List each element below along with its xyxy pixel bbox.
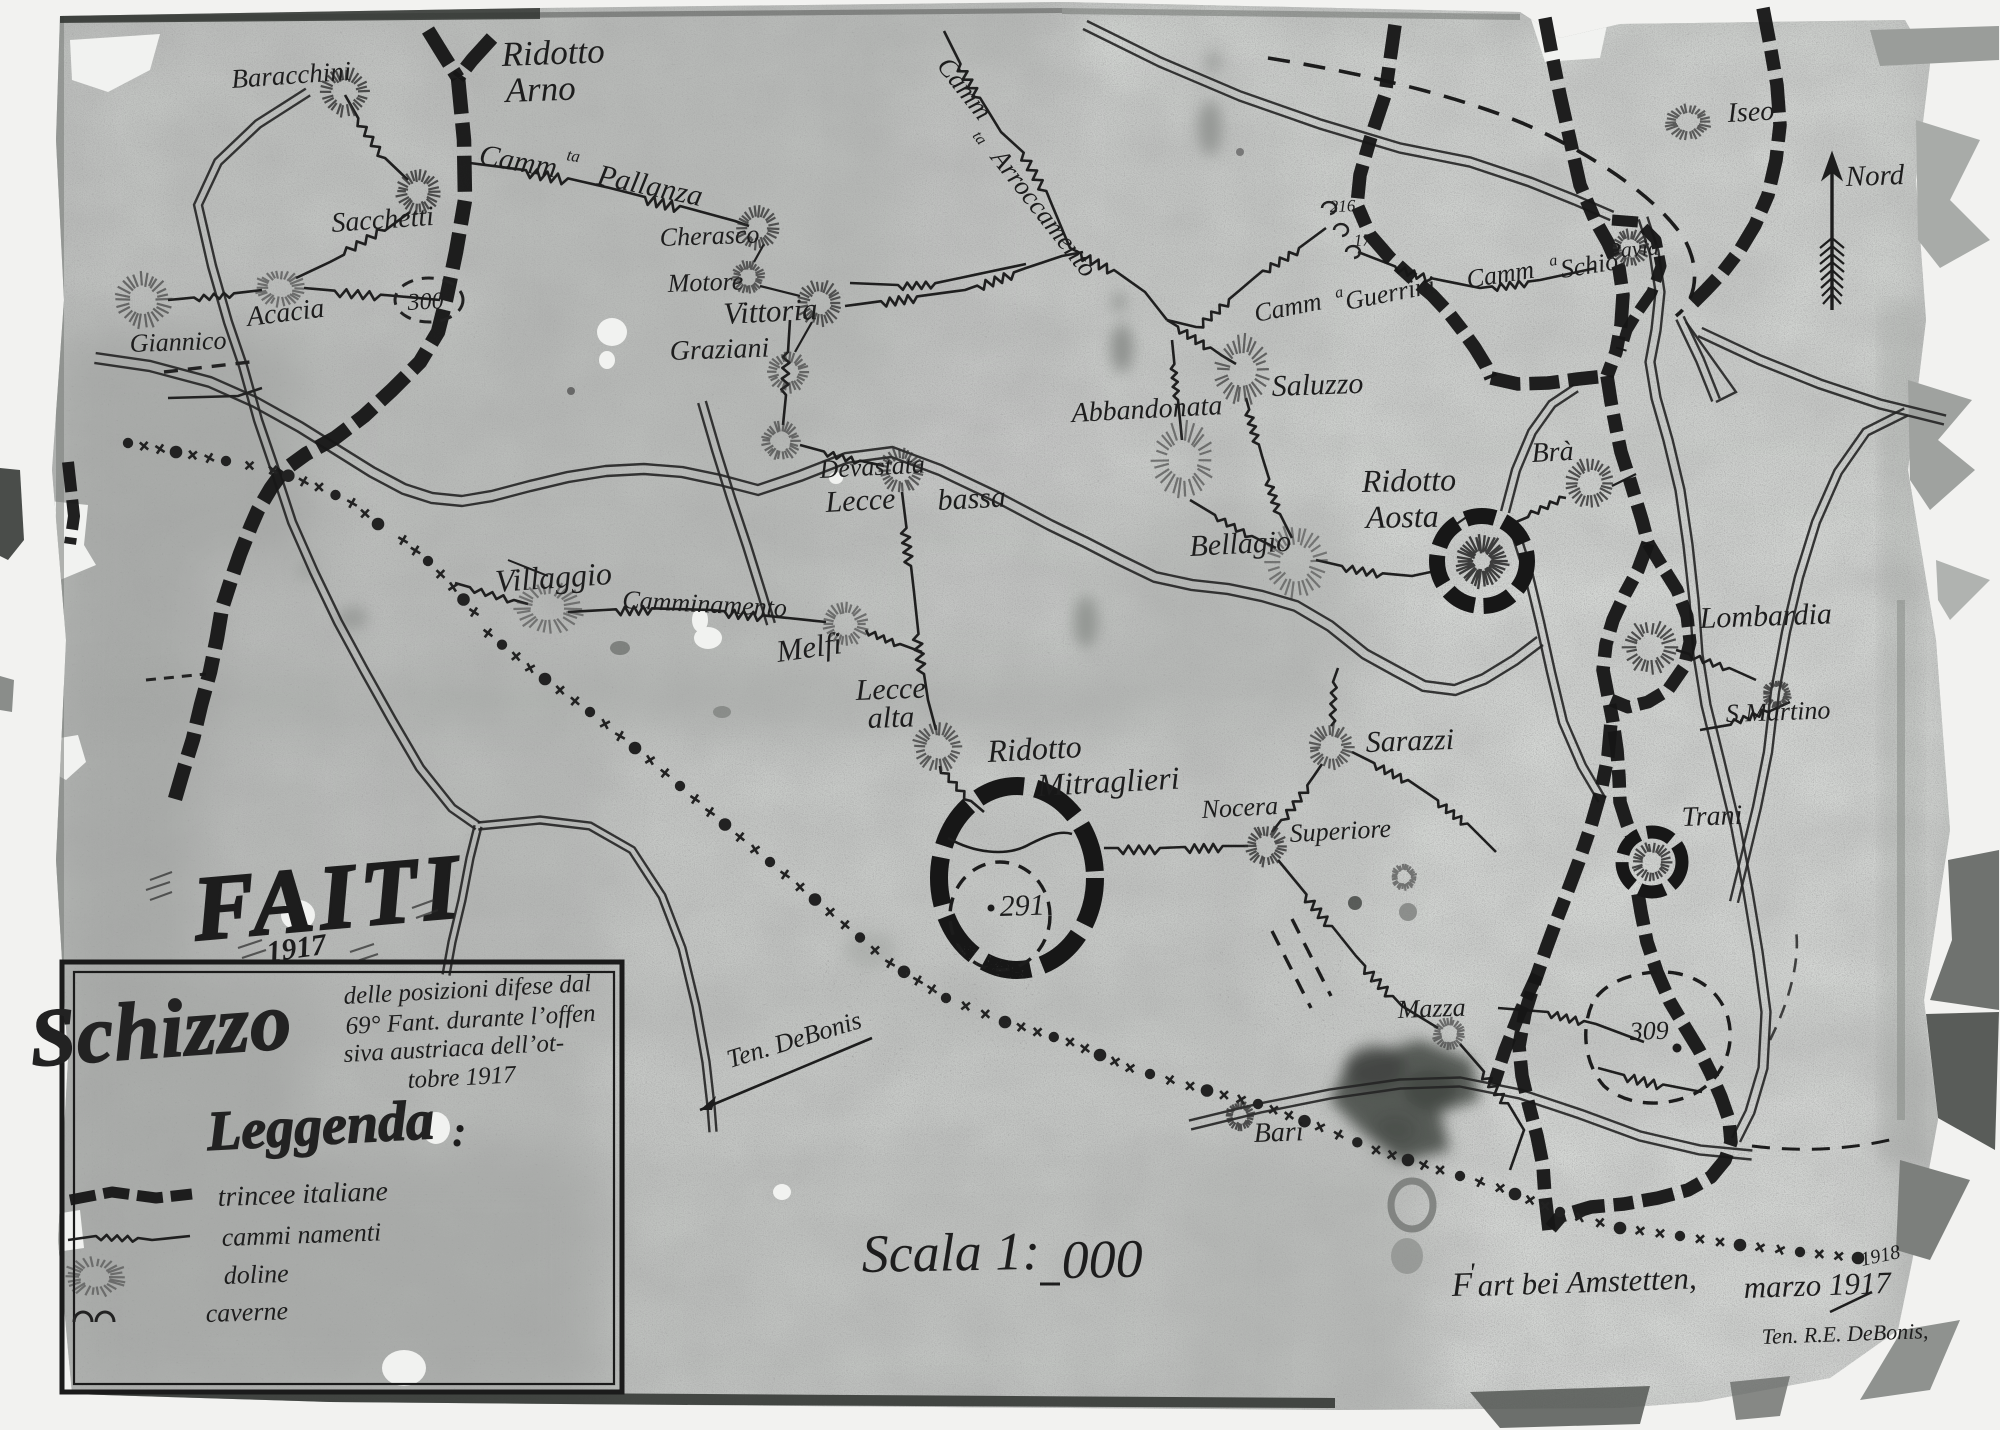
svg-text::: : (452, 1107, 467, 1156)
svg-text:17: 17 (1353, 230, 1372, 250)
svg-text:Vittoria: Vittoria (723, 291, 819, 331)
svg-text:Schizzo: Schizzo (27, 975, 295, 1084)
svg-text:Giannico: Giannico (129, 326, 227, 358)
svg-text:bassa: bassa (937, 480, 1007, 517)
svg-text:Graziani: Graziani (669, 333, 770, 367)
svg-text:291: 291 (999, 888, 1045, 923)
svg-text:cammi namenti: cammi namenti (221, 1217, 382, 1252)
svg-text:doline: doline (223, 1259, 289, 1290)
svg-text:Iseo: Iseo (1726, 96, 1775, 129)
svg-text:Saluzzo: Saluzzo (1271, 367, 1364, 403)
svg-text:alta: alta (867, 700, 915, 735)
svg-text:Mazza: Mazza (1396, 993, 1466, 1024)
svg-text:Sarazzi: Sarazzi (1365, 723, 1454, 759)
svg-text:marzo 1917: marzo 1917 (1743, 1265, 1893, 1305)
svg-text:caverne: caverne (205, 1296, 288, 1328)
svg-text:Lombardia: Lombardia (1698, 597, 1832, 635)
svg-text:Trani: Trani (1681, 800, 1743, 833)
svg-text:309: 309 (1628, 1016, 1669, 1046)
svg-text:Aosta: Aosta (1363, 498, 1439, 535)
svg-text:Scala 1:: Scala 1: (861, 1221, 1040, 1284)
svg-text:300: 300 (406, 288, 444, 316)
svg-text:Ridotto: Ridotto (500, 31, 605, 74)
svg-text:Motore: Motore (666, 266, 744, 298)
svg-text:Bari: Bari (1253, 1116, 1304, 1149)
svg-text:S.Martino: S.Martino (1725, 695, 1831, 728)
svg-text:Superiore: Superiore (1289, 814, 1392, 848)
svg-text:Ridotto: Ridotto (985, 728, 1082, 769)
svg-text:Mitraglieri: Mitraglieri (1035, 760, 1180, 803)
svg-text:Leggenda: Leggenda (204, 1089, 435, 1163)
svg-text:Brà: Brà (1531, 436, 1575, 469)
svg-text:Bellagio: Bellagio (1189, 525, 1292, 563)
svg-text:Arno: Arno (503, 69, 576, 110)
svg-text:Ridotto: Ridotto (1360, 461, 1456, 499)
svg-text:Devastata: Devastata (818, 450, 926, 485)
svg-text:216: 216 (1329, 196, 1356, 216)
svg-text:Cherasco: Cherasco (659, 220, 760, 252)
svg-text:Lecce: Lecce (824, 482, 897, 519)
svg-text:Pavia: Pavia (1606, 234, 1660, 263)
svg-text:Nord: Nord (1844, 159, 1905, 193)
svg-text:Nocera: Nocera (1200, 791, 1279, 824)
svg-text:trincee italiane: trincee italiane (217, 1176, 388, 1213)
svg-text:000: 000 (1061, 1229, 1143, 1290)
